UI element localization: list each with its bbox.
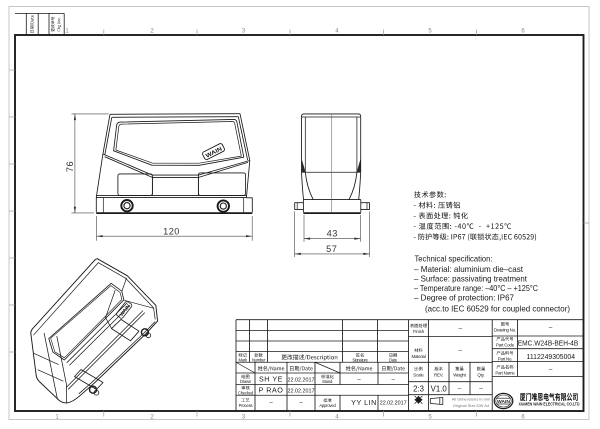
svg-text:(acc.to IEC 60529 for coup: (acc.to IEC 60529 for coupled connector) (425, 304, 570, 313)
svg-text:Mark: Mark (238, 357, 248, 362)
svg-text:–: – (549, 367, 553, 374)
svg-text:– Temperature range: –40°C: – Temperature range: –40°C – +125°C (414, 284, 538, 293)
svg-text:Qty.: Qty. (477, 373, 484, 378)
svg-text:Part Code: Part Code (496, 343, 515, 348)
svg-text:Finish: Finish (413, 329, 425, 334)
svg-text:Date: Date (389, 357, 398, 362)
svg-text:V1.0: V1.0 (431, 384, 448, 393)
svg-text:Material: Material (411, 354, 425, 359)
svg-text:120: 120 (163, 226, 180, 236)
svg-text:SH YE: SH YE (259, 375, 283, 384)
svg-text:1112249305004: 1112249305004 (527, 352, 576, 361)
svg-text:REV.: REV. (434, 373, 443, 378)
svg-text:WAIN: WAIN (497, 399, 511, 404)
svg-text:Checked: Checked (238, 390, 254, 395)
svg-text:Process: Process (239, 403, 253, 408)
svg-text:– Surface: passivating trea: – Surface: passivating treatment (414, 275, 528, 284)
svg-text:Part No.: Part No. (498, 357, 513, 362)
svg-text:Original Size DIN A4: Original Size DIN A4 (453, 403, 490, 408)
svg-text:Weight: Weight (453, 373, 466, 378)
svg-text:XIAMEN WAIN ELECTRICAL CO.LTD: XIAMEN WAIN ELECTRICAL CO.LTD (519, 402, 580, 407)
svg-text:–: – (458, 325, 462, 332)
svg-text:22.02.2017: 22.02.2017 (288, 388, 315, 394)
svg-text:Approved: Approved (319, 403, 336, 408)
svg-text:Technical specification:: Technical specification: (415, 255, 493, 264)
svg-text:EMC.W24B-BEH-4B: EMC.W24B-BEH-4B (518, 339, 579, 348)
svg-text:Stand.: Stand. (322, 379, 333, 384)
svg-text:76: 76 (65, 161, 75, 172)
svg-text:43: 43 (327, 229, 338, 239)
svg-text:All Dimensions in mm: All Dimensions in mm (452, 397, 491, 402)
svg-text:57: 57 (326, 244, 337, 254)
svg-text:Drawn: Drawn (240, 379, 252, 384)
svg-text:Number: Number (252, 357, 266, 362)
svg-text:Scale: Scale (413, 373, 424, 378)
svg-text:Part Name: Part Name (495, 371, 515, 376)
svg-text:22.02.2017: 22.02.2017 (288, 377, 315, 383)
svg-text:–: – (549, 324, 553, 331)
svg-text:– Degree of protection: IP: – Degree of protection: IP67 (414, 293, 514, 302)
svg-text:–: – (479, 386, 483, 393)
svg-text:Drawing No.: Drawing No. (494, 328, 516, 333)
svg-text:– Material: aluminium die–c: – Material: aluminium die–cast (414, 265, 524, 274)
svg-text:Signature: Signature (352, 357, 368, 362)
svg-text:–: – (458, 347, 462, 354)
svg-text:YY LIN: YY LIN (351, 398, 377, 407)
svg-text:–: – (458, 386, 462, 393)
svg-text:2:3: 2:3 (413, 384, 424, 393)
svg-text:22.02.2017: 22.02.2017 (380, 401, 407, 407)
svg-text:P RAO: P RAO (259, 386, 284, 395)
